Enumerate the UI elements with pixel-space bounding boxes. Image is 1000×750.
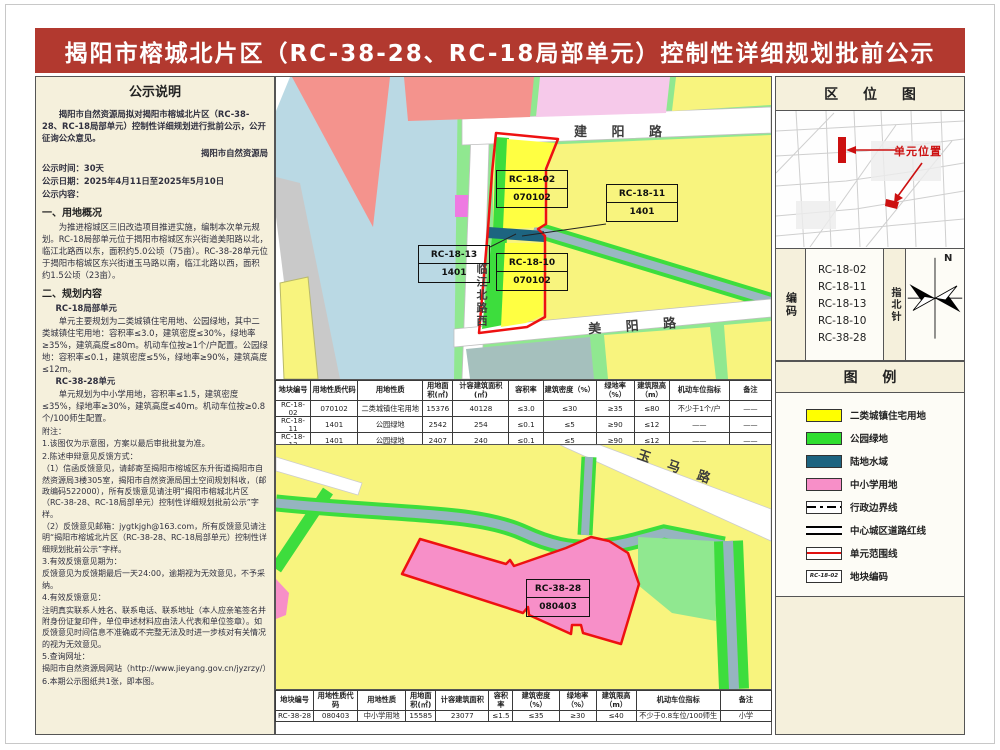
notice-line: 附注： bbox=[42, 426, 268, 437]
notice-line: 单元规划为中小学用地，容积率≤1.5，建筑密度≤35%，绿地率≥30%，建筑高度… bbox=[42, 389, 268, 425]
legend-label: 中小学用地 bbox=[850, 477, 898, 491]
notice-line: 5.查询网址： bbox=[42, 651, 268, 662]
notice-line: 反馈意见为反馈期最后一天24:00，逾期视为无效意见，不予采纳。 bbox=[42, 568, 268, 591]
parcel-code: RC-18-11 bbox=[607, 185, 677, 203]
column-header: 备注 bbox=[720, 691, 771, 711]
legend-label: 陆地水域 bbox=[850, 454, 888, 468]
legend-item: RC-18-02 地块编码 bbox=[806, 566, 964, 586]
parcel-use-code: 080403 bbox=[527, 598, 589, 616]
column-header: 建筑密度（%） bbox=[513, 691, 559, 711]
column-header: 绿地率（%） bbox=[559, 691, 596, 711]
cell: 中小学用地 bbox=[358, 711, 406, 722]
cell: 2542 bbox=[423, 417, 453, 433]
cell: 15585 bbox=[406, 711, 436, 722]
cell: ≤12 bbox=[634, 417, 669, 433]
column-header: 用地性质代码 bbox=[314, 691, 358, 711]
cell: ≤30 bbox=[543, 401, 596, 417]
notice-line: 公示说明 bbox=[42, 84, 268, 102]
parcel-code: RC-18-02 bbox=[497, 171, 567, 189]
legend-label: 二类城镇住宅用地 bbox=[850, 408, 926, 422]
unit-codes-list: RC-18-02RC-18-11RC-18-13RC-18-10RC-38-28 bbox=[806, 249, 884, 360]
north-arrow-icon bbox=[906, 249, 964, 347]
parcel-use-code: 1401 bbox=[419, 264, 489, 282]
notice-line: 6.本期公示图纸共1张，即本图。 bbox=[42, 676, 268, 687]
cell: 15376 bbox=[423, 401, 453, 417]
cell: —— bbox=[729, 401, 771, 417]
unit-code: RC-18-10 bbox=[818, 313, 883, 330]
column-header: 用地性质 bbox=[358, 381, 423, 401]
notice-line: 单元主要规划为二类城镇住宅用地、公园绿地，其中二类城镇住宅用地：容积率≤3.0，… bbox=[42, 316, 268, 376]
legend-swatch bbox=[806, 501, 842, 514]
column-header: 计容建筑面积 bbox=[436, 691, 489, 711]
cell: 不少于1个/户 bbox=[669, 401, 729, 417]
cell: 二类城镇住宅用地 bbox=[358, 401, 423, 417]
notice-line: 为推进榕城区三旧改造项目推进实施，编制本次单元规划。RC-18局部单元位于揭阳市… bbox=[42, 222, 268, 282]
notice-line: 揭阳市自然资源局拟对揭阳市榕城北片区（RC-38-28、RC-18局部单元）控制… bbox=[42, 109, 268, 145]
sub-map-rc38-28: 玉 马 路 RC-38-28 080403 bbox=[275, 444, 772, 690]
parcel-code: RC-18-13 bbox=[419, 246, 489, 264]
legend-swatch bbox=[806, 547, 842, 560]
page-title: 揭阳市榕城北片区（RC-38-28、RC-18局部单元）控制性详细规划批前公示 bbox=[35, 28, 965, 73]
column-header: 计容建筑面积(㎡) bbox=[453, 381, 509, 401]
sidebar: 区 位 图 单元位置 bbox=[775, 76, 965, 735]
cell: ≤1.5 bbox=[489, 711, 513, 722]
cell: 40128 bbox=[453, 401, 509, 417]
column-header: 建筑密度（%） bbox=[543, 381, 596, 401]
cell: ≥90 bbox=[596, 417, 634, 433]
legend-label: 公园绿地 bbox=[850, 431, 888, 445]
parcel-use-code: 1401 bbox=[607, 203, 677, 221]
unit-code: RC-18-02 bbox=[818, 262, 883, 279]
planning-notice-sheet: 揭阳市榕城北片区（RC-38-28、RC-18局部单元）控制性详细规划批前公示 … bbox=[0, 0, 1000, 750]
notice-panel: 公示说明揭阳市自然资源局拟对揭阳市榕城北片区（RC-38-28、RC-18局部单… bbox=[35, 76, 275, 735]
parcel-code: RC-38-28 bbox=[527, 580, 589, 598]
parcel-label-rc-18-11: RC-18-11 1401 bbox=[606, 184, 678, 222]
middle-footer-strip bbox=[275, 722, 772, 735]
table-row: RC-18-02070102 二类城镇住宅用地15376 40128≤3.0 ≤… bbox=[276, 401, 772, 417]
notice-line: （1）信函反馈意见，请邮寄至揭阳市榕城区东升街道揭阳市自然资源局3楼305室，揭… bbox=[42, 463, 268, 520]
legend-item: 单元范围线 bbox=[806, 543, 964, 563]
notice-line: 公示日期：2025年4月11日至2025年5月10日 bbox=[42, 176, 268, 188]
column-header: 机动车位指标 bbox=[669, 381, 729, 401]
cell: ≥30 bbox=[559, 711, 596, 722]
column-header: 地块编号 bbox=[276, 381, 311, 401]
rc38-28-parcel-table: 地块编号用地性质代码用地性质用地面积(㎡)计容建筑面积容积率建筑密度（%）绿地率… bbox=[275, 690, 772, 722]
legend-label: 中心城区道路红线 bbox=[850, 523, 926, 537]
cell: RC-18-02 bbox=[276, 401, 311, 417]
parcel-use-code: 070102 bbox=[497, 272, 567, 290]
cell: 公园绿地 bbox=[358, 417, 423, 433]
legend-label: 地块编码 bbox=[850, 569, 888, 583]
notice-line: （2）反馈意见邮箱：jygtkjgh@163.com，所有反馈意见请注明“揭阳市… bbox=[42, 521, 268, 555]
parcel-code: RC-18-10 bbox=[497, 254, 567, 272]
legend-item: 中心城区道路红线 bbox=[806, 520, 964, 540]
unit-location-label: 单元位置 bbox=[894, 143, 942, 159]
parcel-label-rc-18-10: RC-18-10 070102 bbox=[496, 253, 568, 291]
cell: 小学 bbox=[720, 711, 771, 722]
column-header: 用地性质 bbox=[358, 691, 406, 711]
cell: RC-18-11 bbox=[276, 417, 311, 433]
legend-title: 图 例 bbox=[776, 361, 964, 393]
legend-swatch bbox=[806, 409, 842, 422]
legend-swatch bbox=[806, 526, 842, 535]
notice-line: 公示内容： bbox=[42, 189, 268, 201]
column-header: 绿地率（%） bbox=[596, 381, 634, 401]
legend-swatch bbox=[806, 478, 842, 491]
cell: RC-38-28 bbox=[276, 711, 314, 722]
parcel-label-rc-38-28: RC-38-28 080403 bbox=[526, 579, 590, 617]
main-map-graphic bbox=[276, 77, 771, 379]
legend-label: 单元范围线 bbox=[850, 546, 898, 560]
column-header: 用地面积(㎡) bbox=[423, 381, 453, 401]
notice-line: 注明真实联系人姓名、联系电话、联系地址（本人应亲笔签名并附身份证复印件，单位申述… bbox=[42, 605, 268, 650]
column-header: 地块编号 bbox=[276, 691, 314, 711]
compass: N bbox=[906, 249, 964, 360]
notice-line: 揭阳市自然资源局 bbox=[42, 148, 268, 160]
cell: ≤80 bbox=[634, 401, 669, 417]
cell: ≤5 bbox=[543, 417, 596, 433]
column-header: 建筑限高（m） bbox=[634, 381, 669, 401]
parcel-use-code: 070102 bbox=[497, 189, 567, 207]
cell: 1401 bbox=[311, 417, 358, 433]
table-row: RC-18-111401 公园绿地2542 254≤0.1 ≤5≥90 ≤12—… bbox=[276, 417, 772, 433]
unit-code: RC-18-13 bbox=[818, 296, 883, 313]
column-header: 容积率 bbox=[509, 381, 543, 401]
cell: 23077 bbox=[436, 711, 489, 722]
notice-line: 4.有效反馈意见： bbox=[42, 592, 268, 603]
codes-label-cell: 编码 bbox=[776, 249, 806, 360]
cell: 070102 bbox=[311, 401, 358, 417]
notice-line: RC-38-28单元 bbox=[42, 376, 268, 388]
notice-line: 一、用地概况 bbox=[42, 207, 268, 221]
legend-swatch-text: RC-18-02 bbox=[810, 573, 838, 579]
cell: 254 bbox=[453, 417, 509, 433]
location-map-graphic bbox=[776, 111, 964, 247]
notice-line: 2.陈述申辩意见反馈方式： bbox=[42, 451, 268, 462]
cell: 不少于0.8车位/100师生 bbox=[636, 711, 720, 722]
legend-item: 二类城镇住宅用地 bbox=[806, 405, 964, 425]
compass-label-cell: 指北针 bbox=[884, 249, 906, 360]
legend-swatch: RC-18-02 bbox=[806, 570, 842, 583]
notice-line: 3.有效反馈意见期为： bbox=[42, 556, 268, 567]
unit-code: RC-38-28 bbox=[818, 330, 883, 347]
legend-swatch bbox=[806, 432, 842, 445]
legend-item: 陆地水域 bbox=[806, 451, 964, 471]
parcel-label-rc-18-13: RC-18-13 1401 bbox=[418, 245, 490, 283]
legend-item: 中小学用地 bbox=[806, 474, 964, 494]
notice-line: 1.该图仅为示意图，方案以最后审批批复为准。 bbox=[42, 438, 268, 449]
codes-label: 编码 bbox=[783, 292, 799, 318]
column-header: 用地性质代码 bbox=[311, 381, 358, 401]
compass-label: 指北针 bbox=[887, 287, 902, 323]
notice-body: 公示说明揭阳市自然资源局拟对揭阳市榕城北片区（RC-38-28、RC-18局部单… bbox=[42, 84, 268, 687]
notice-line: RC-18局部单元 bbox=[42, 303, 268, 315]
cell: ≤0.1 bbox=[509, 417, 543, 433]
cell: ≤40 bbox=[596, 711, 636, 722]
legend-label: 行政边界线 bbox=[850, 500, 898, 514]
parcel-label-rc-18-02: RC-18-02 070102 bbox=[496, 170, 568, 208]
column-header: 备注 bbox=[729, 381, 771, 401]
column-header: 建筑限高（m） bbox=[596, 691, 636, 711]
notice-line: 公示时间：30天 bbox=[42, 163, 268, 175]
north-label: N bbox=[944, 253, 952, 264]
cell: ≤3.0 bbox=[509, 401, 543, 417]
column-header: 机动车位指标 bbox=[636, 691, 720, 711]
cell: 080403 bbox=[314, 711, 358, 722]
road-label-jianyang: 建 阳 路 bbox=[574, 121, 672, 140]
unit-code: RC-18-11 bbox=[818, 279, 883, 296]
cell: —— bbox=[669, 417, 729, 433]
notice-line: 二、规划内容 bbox=[42, 288, 268, 302]
cell: —— bbox=[729, 417, 771, 433]
legend-item: 公园绿地 bbox=[806, 428, 964, 448]
legend-swatch bbox=[806, 455, 842, 468]
cell: ≥35 bbox=[596, 401, 634, 417]
location-map: 单元位置 bbox=[776, 111, 964, 249]
location-map-title: 区 位 图 bbox=[776, 77, 964, 111]
column-header: 用地面积(㎡) bbox=[406, 691, 436, 711]
table-row: RC-38-28080403 中小学用地15585 23077≤1.5 ≤35≥… bbox=[276, 711, 772, 722]
column-header: 容积率 bbox=[489, 691, 513, 711]
notice-line: 揭阳市自然资源局网站（http://www.jieyang.gov.cn/jyz… bbox=[42, 663, 268, 674]
legend: 二类城镇住宅用地 公园绿地 陆地水域 中小学用地 行政边界线 中心城区道路红线 … bbox=[776, 393, 964, 597]
main-map-rc18: 建 阳 路 美 阳 路 临江北路西 RC-18-02 070102 RC-18-… bbox=[275, 76, 772, 380]
codes-section: 编码 RC-18-02RC-18-11RC-18-13RC-18-10RC-38… bbox=[776, 249, 964, 361]
legend-item: 行政边界线 bbox=[806, 497, 964, 517]
cell: ≤35 bbox=[513, 711, 559, 722]
